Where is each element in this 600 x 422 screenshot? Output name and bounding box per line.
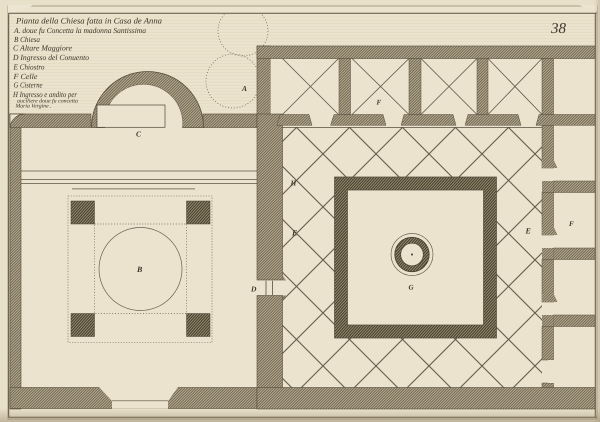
svg-text:B: B bbox=[136, 265, 143, 274]
svg-text:H: H bbox=[290, 179, 298, 188]
svg-text:G: G bbox=[409, 284, 414, 292]
svg-text:Pianta della Chiesa fatta in C: Pianta della Chiesa fatta in Casa de Ann… bbox=[15, 17, 162, 26]
svg-text:38: 38 bbox=[550, 21, 567, 37]
svg-text:F: F bbox=[377, 99, 382, 107]
svg-text:G Cisterne: G Cisterne bbox=[14, 80, 43, 89]
svg-text:Maria Vergine .: Maria Vergine . bbox=[14, 103, 51, 109]
svg-text:E: E bbox=[291, 229, 297, 238]
svg-text:E Chiostro: E Chiostro bbox=[13, 62, 45, 71]
svg-text:F: F bbox=[569, 220, 574, 228]
svg-text:D Ingresso del Conuento: D Ingresso del Conuento bbox=[12, 53, 89, 62]
svg-text:E: E bbox=[525, 227, 531, 236]
svg-text:A. doue fu Concetta la madonna: A. doue fu Concetta la madonna Santissim… bbox=[13, 26, 146, 35]
svg-text:C Altare Maggiore: C Altare Maggiore bbox=[13, 44, 73, 53]
svg-text:A: A bbox=[241, 84, 247, 93]
svg-text:D: D bbox=[250, 285, 257, 294]
